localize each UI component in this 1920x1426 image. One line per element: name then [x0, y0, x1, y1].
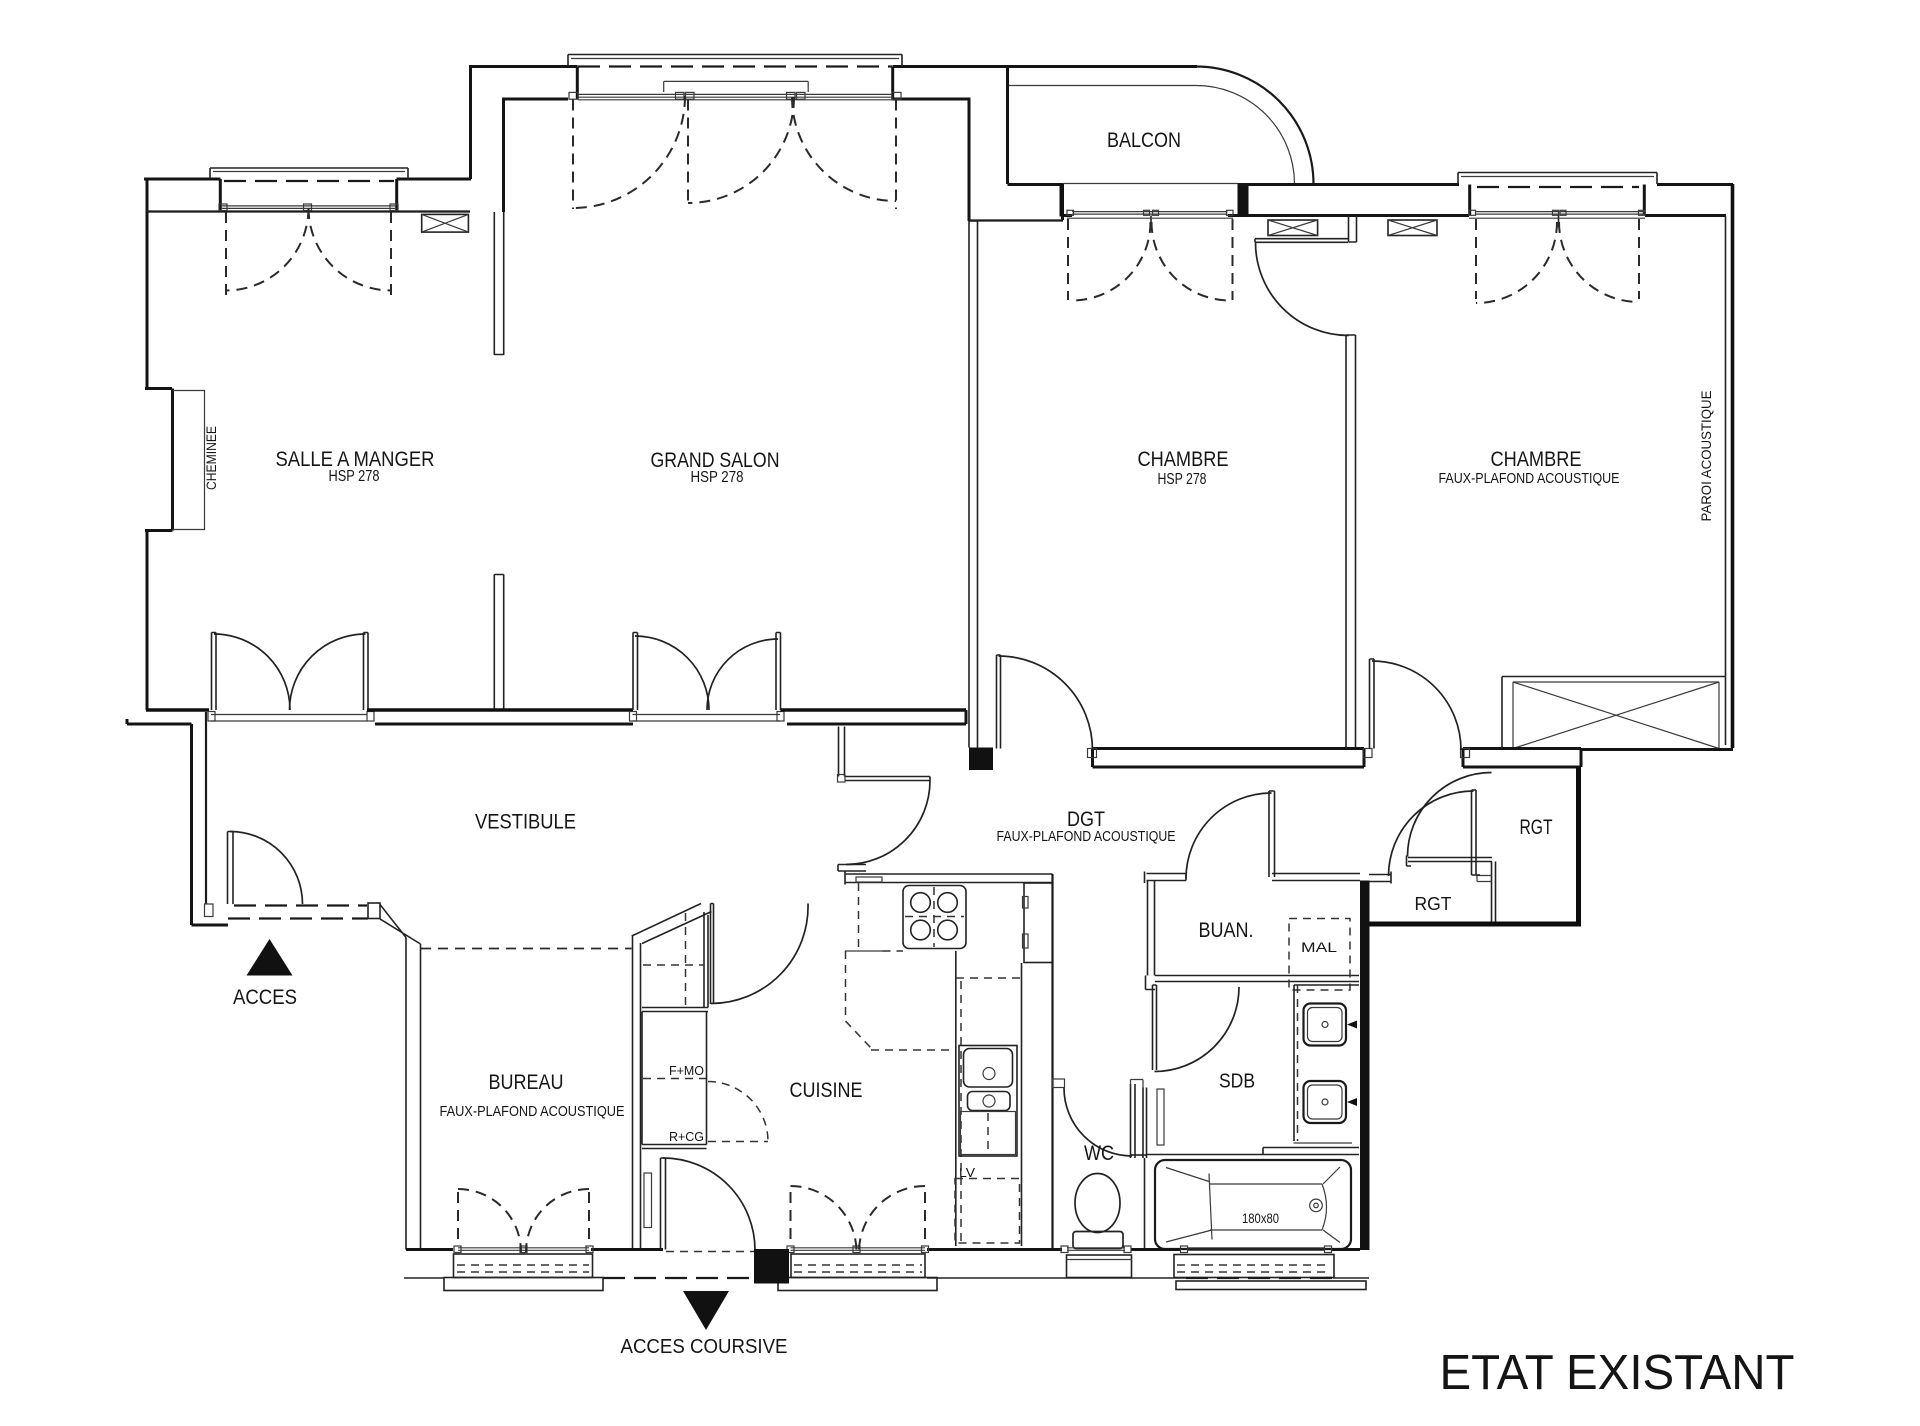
svg-text:HSP 278: HSP 278 — [329, 468, 380, 485]
svg-text:F+MO: F+MO — [669, 1063, 704, 1078]
svg-text:CHAMBRE: CHAMBRE — [1491, 447, 1582, 471]
svg-text:BUAN.: BUAN. — [1199, 918, 1254, 942]
svg-text:BUREAU: BUREAU — [489, 1070, 564, 1094]
svg-text:HSP 278: HSP 278 — [1158, 471, 1207, 488]
svg-text:VESTIBULE: VESTIBULE — [475, 810, 576, 834]
svg-text:WC: WC — [1084, 1141, 1114, 1165]
svg-text:ETAT EXISTANT: ETAT EXISTANT — [1440, 1346, 1795, 1400]
svg-text:CUISINE: CUISINE — [790, 1078, 863, 1102]
svg-text:MAL: MAL — [1301, 940, 1338, 955]
svg-text:FAUX-PLAFOND ACOUSTIQUE: FAUX-PLAFOND ACOUSTIQUE — [440, 1103, 625, 1120]
svg-text:CHEMINEE: CHEMINEE — [204, 426, 219, 490]
svg-text:PAROI ACOUSTIQUE: PAROI ACOUSTIQUE — [1699, 391, 1714, 522]
svg-text:FAUX-PLAFOND ACOUSTIQUE: FAUX-PLAFOND ACOUSTIQUE — [997, 828, 1176, 845]
svg-text:SDB: SDB — [1219, 1071, 1255, 1093]
svg-text:180x80: 180x80 — [1242, 1211, 1279, 1226]
svg-text:HSP 278: HSP 278 — [691, 469, 744, 486]
svg-text:ACCES COURSIVE: ACCES COURSIVE — [621, 1336, 788, 1358]
svg-text:ACCES: ACCES — [233, 985, 297, 1009]
svg-text:RGT: RGT — [1520, 815, 1553, 839]
svg-text:BALCON: BALCON — [1107, 128, 1181, 152]
svg-text:R+CG: R+CG — [669, 1129, 704, 1144]
svg-text:CHAMBRE: CHAMBRE — [1138, 447, 1229, 471]
svg-text:RGT: RGT — [1415, 893, 1452, 914]
svg-text:FAUX-PLAFOND ACOUSTIQUE: FAUX-PLAFOND ACOUSTIQUE — [1439, 470, 1620, 487]
